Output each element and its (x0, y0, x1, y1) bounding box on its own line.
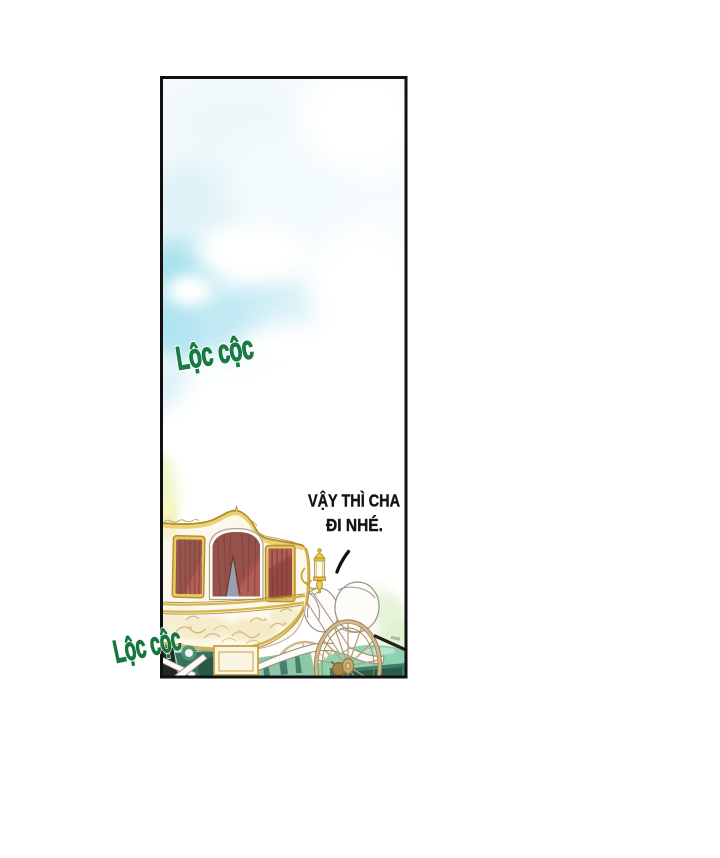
svg-text:VẬY THÌ CHA: VẬY THÌ CHA (308, 490, 400, 511)
svg-text:ĐI NHÉ.: ĐI NHÉ. (326, 514, 383, 535)
